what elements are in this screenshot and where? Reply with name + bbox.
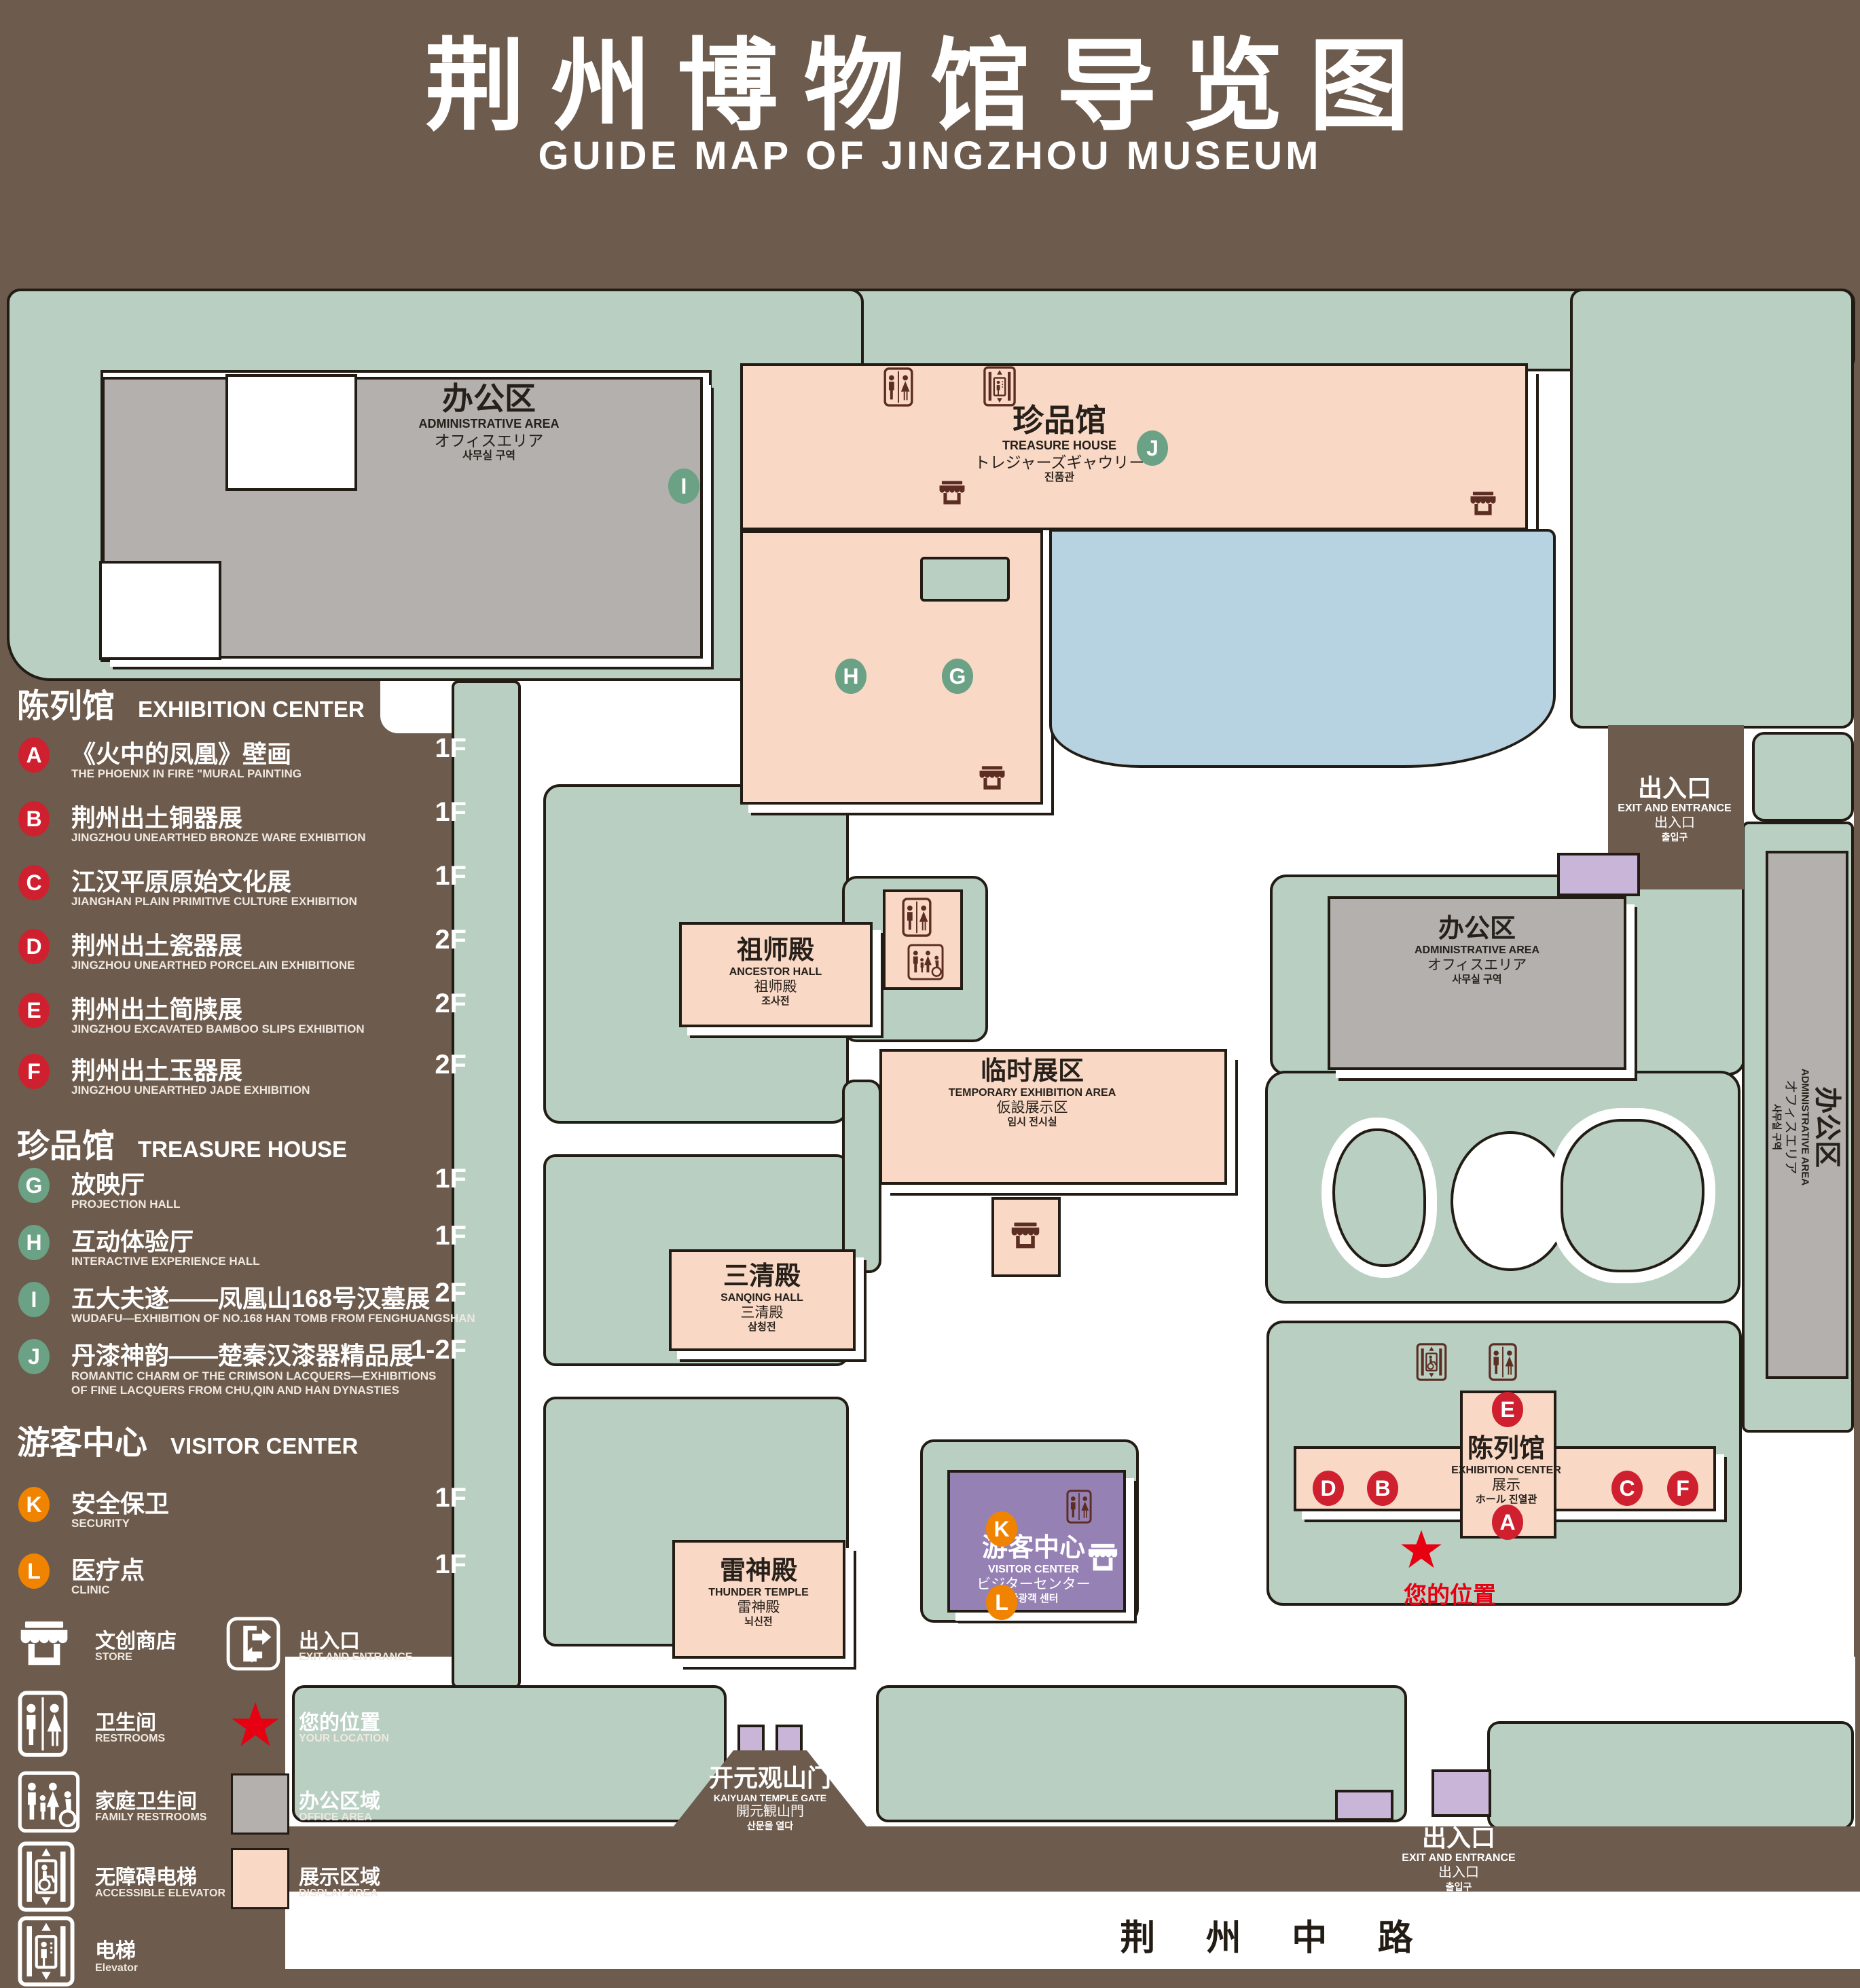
admin-mid-label: 办公区 ADMINISTRATIVE AREA オフィスエリア 사무실 구역 — [1415, 914, 1539, 986]
family-restroom-icon — [18, 1771, 80, 1833]
lawn-ne-sliver — [1752, 732, 1854, 822]
store-icon — [18, 1619, 71, 1668]
gate-block-left — [737, 1725, 765, 1754]
marker-f-map: F — [1667, 1471, 1698, 1506]
gate-block-ne — [1557, 853, 1640, 896]
lawn-temp-west — [842, 1080, 881, 1273]
garden-pond — [1451, 1131, 1570, 1271]
your-location-label: 您的位置 — [1404, 1577, 1496, 1610]
accessible-elevator-icon — [18, 1841, 75, 1912]
gate-block-s1 — [1335, 1790, 1393, 1821]
legend-item-f: F 荆州出土玉器展 JINGZHOU UNEARTHED JADE EXHIBI… — [17, 1054, 467, 1116]
marker-e-map: E — [1492, 1392, 1523, 1427]
store-icon — [1087, 1540, 1119, 1575]
marker-h-map: H — [835, 659, 867, 694]
sanqing-hall-label: 三清殿 SANQING HALL 三清殿 삼청전 — [721, 1262, 803, 1333]
restroom-icon — [883, 367, 914, 407]
exit-icon — [225, 1616, 281, 1672]
elevator-icon — [983, 366, 1016, 407]
marker-a-map: A — [1492, 1505, 1523, 1540]
marker-b-map: B — [1367, 1471, 1398, 1506]
legend-item-k: K 安全保卫 SECURITY 1F — [17, 1487, 467, 1549]
legend-item-g: G 放映厅 PROJECTION HALL 1F — [17, 1168, 467, 1230]
accessible-elevator-icon — [1416, 1343, 1447, 1381]
exit-ne-label: 出入口 EXIT AND ENTRANCE 出入口 출입구 — [1618, 774, 1731, 843]
gate-block-s2 — [1432, 1769, 1491, 1817]
gate-label: 开元观山门 KAIYUAN TEMPLE GATE 開元観山門 산문을 열다 — [709, 1764, 831, 1831]
legend-item-e: E 荆州出土简牍展 JINGZHOU EXCAVATED BAMBOO SLIP… — [17, 993, 467, 1055]
marker-g-map: G — [942, 659, 973, 694]
store-icon — [1469, 487, 1497, 520]
store-icon — [938, 477, 966, 509]
legend-section-treasure: 珍品馆TREASURE HOUSE — [17, 1119, 347, 1166]
thunder-temple-label: 雷神殿 THUNDER TEMPLE 雷神殿 뇌신전 — [708, 1556, 809, 1628]
marker-c-map: C — [1611, 1471, 1643, 1506]
exit-icon — [1570, 813, 1604, 847]
marker-k-map: K — [986, 1511, 1017, 1547]
legend-item-j: J 丹漆神韵——楚秦汉漆器精品展 ROMANTIC CHARM OF THE C… — [17, 1339, 467, 1401]
page-title: 荆州博物馆导览图 — [0, 4, 1860, 150]
lawn-water-patch — [920, 557, 1010, 602]
legend-item-d: D 荆州出土瓷器展 JINGZHOU UNEARTHED PORCELAIN E… — [17, 929, 467, 991]
elevator-icon — [18, 1916, 75, 1987]
restroom-icon — [901, 898, 932, 937]
legend-item-i: I 五大夫遂——凤凰山168号汉墓展 WUDAFU—EXHIBITION OF … — [17, 1282, 467, 1344]
marker-i-map: I — [668, 468, 699, 504]
legend-item-b: B 荆州出土铜器展 JINGZHOU UNEARTHED BRONZE WARE… — [17, 801, 467, 864]
marker-d-map: D — [1313, 1471, 1344, 1506]
marker-l-map: L — [986, 1585, 1017, 1620]
admin-east-label: 办公区 ADMINISTRATIVE AREA オフィスエリア 사무실 구역 — [1771, 1069, 1844, 1186]
exhibition-center-label: 陈列馆 EXHIBITION CENTER 展示 ホール 진열관 — [1451, 1434, 1561, 1506]
lawn-band-right — [1487, 1721, 1854, 1830]
legend-item-c: C 江汉平原原始文化展 JIANGHAN PLAIN PRIMITIVE CUL… — [17, 865, 467, 927]
admin-top-left-notch-2 — [225, 374, 357, 491]
treasure-house-label: 珍品馆 TREASURE HOUSE トレジャーズギャウリー 진품관 — [974, 402, 1145, 485]
location-star-icon — [1400, 1529, 1442, 1570]
guide-map-poster: 荆州博物馆导览图 GUIDE MAP OF JINGZHOU MUSEUM 办公… — [0, 0, 1860, 1988]
legend-section-exhibition: 陈列馆EXHIBITION CENTER — [17, 679, 365, 726]
store-icon — [978, 762, 1006, 794]
legend-item-a: A 《火中的凤凰》壁画 THE PHOENIX IN FIRE "MURAL P… — [17, 737, 467, 800]
restroom-icon — [18, 1691, 68, 1757]
lawn-band-mid — [876, 1685, 1407, 1822]
temporary-area-label: 临时展区 TEMPORARY EXHIBITION AREA 仮設展示区 임시 … — [949, 1056, 1116, 1128]
road-strip — [285, 1892, 1860, 1969]
water-pond — [1049, 529, 1556, 768]
marker-j-map: J — [1137, 430, 1168, 466]
family-restroom-icon — [906, 944, 945, 980]
exit-s-label: 出入口 EXIT AND ENTRANCE 出入口 출입구 — [1402, 1824, 1515, 1892]
legend-item-h: H 互动体验厅 INTERACTIVE EXPERIENCE HALL 1F — [17, 1225, 467, 1287]
ancestor-hall-label: 祖师殿 ANCESTOR HALL 祖师殿 조사전 — [729, 936, 822, 1008]
restroom-icon — [1487, 1343, 1518, 1381]
legend-section-visitor: 游客中心VISITOR CENTER — [17, 1416, 358, 1463]
admin-top-left-label: 办公区 ADMINISTRATIVE AREA オフィスエリア 사무실 구역 — [419, 380, 560, 463]
lawn-top-right — [1570, 289, 1854, 729]
legend-item-l: L 医疗点 CLINIC 1F — [17, 1553, 467, 1616]
display-area-swatch — [231, 1848, 289, 1909]
road-name: 荆 州 中 路 — [1120, 1909, 1433, 1960]
page-subtitle: GUIDE MAP OF JINGZHOU MUSEUM — [0, 133, 1860, 179]
office-area-swatch — [231, 1773, 289, 1835]
admin-top-left-notch-1 — [99, 561, 221, 660]
road-band — [285, 1826, 1860, 1896]
location-star-icon — [231, 1701, 280, 1748]
gate-block-right — [776, 1725, 803, 1754]
restroom-icon — [1065, 1490, 1093, 1524]
store-icon — [1010, 1218, 1041, 1253]
